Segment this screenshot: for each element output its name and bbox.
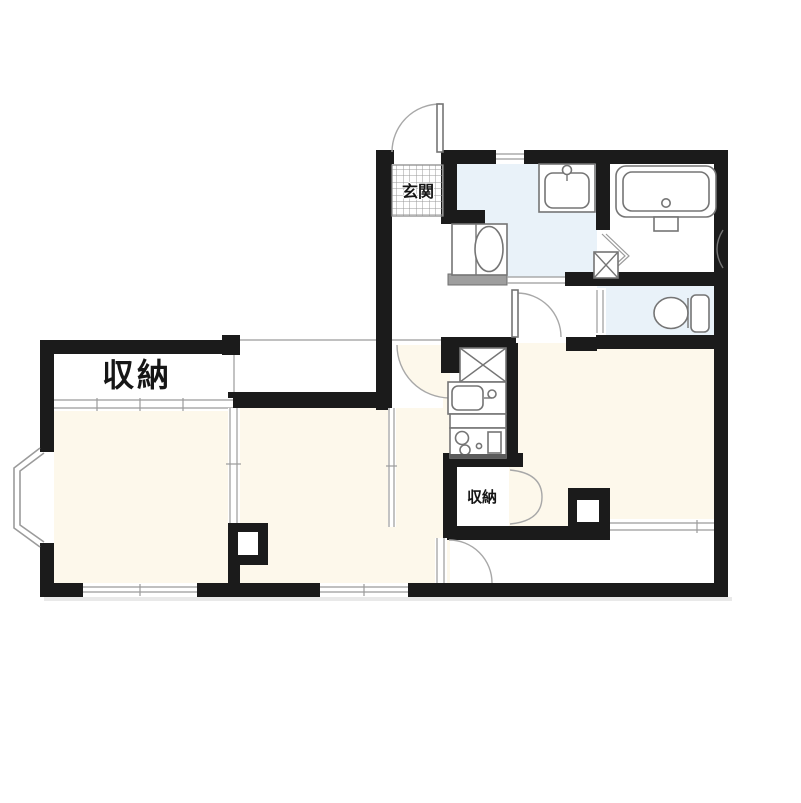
washing-machine bbox=[452, 224, 507, 275]
plan-shadow bbox=[44, 597, 732, 601]
wall-kitchen-stub bbox=[441, 337, 460, 373]
window-top-small bbox=[496, 150, 524, 164]
wall-left-upper bbox=[40, 340, 54, 452]
wall-hall-left bbox=[376, 150, 392, 410]
pillar-left-leg bbox=[228, 563, 240, 585]
living-hall-door bbox=[512, 290, 561, 337]
south-room-door bbox=[449, 540, 492, 583]
storage-small-label: 収納 bbox=[467, 488, 497, 506]
closet-sliding-doors bbox=[54, 398, 233, 411]
wall-bath-left bbox=[596, 150, 610, 230]
wall-bedroomcenter-top bbox=[228, 392, 392, 408]
wall-bottom-2 bbox=[197, 583, 320, 597]
window-bottom-left bbox=[83, 583, 197, 597]
window-living-south bbox=[610, 519, 714, 534]
wall-bath-bottom bbox=[565, 272, 728, 286]
wall-hall-bottom-right bbox=[566, 337, 597, 351]
bathtub bbox=[616, 166, 716, 231]
kitchen-counter bbox=[450, 414, 506, 428]
entrance-door bbox=[392, 104, 443, 152]
wall-bottom-3 bbox=[408, 583, 728, 597]
sliding-door-south-partition bbox=[435, 538, 447, 583]
wall-kitchen-right bbox=[506, 343, 518, 462]
sliding-door-left-center bbox=[226, 408, 241, 523]
wall-top-main bbox=[441, 150, 728, 164]
vanity-sink bbox=[539, 164, 595, 212]
wall-bottom-1 bbox=[40, 583, 83, 597]
refrigerator-space bbox=[460, 348, 506, 382]
kitchen-sink bbox=[448, 382, 506, 414]
toilet-door bbox=[594, 288, 606, 335]
wall-storage-top bbox=[40, 340, 236, 354]
wall-toilet-bottom bbox=[596, 335, 728, 349]
bay-window bbox=[14, 448, 44, 547]
window-bottom-center bbox=[320, 583, 408, 597]
gas-stove bbox=[450, 428, 506, 458]
bedroom-center-floor bbox=[240, 408, 450, 583]
pillar-left-notch bbox=[238, 532, 258, 555]
bedroom-left-floor bbox=[54, 398, 228, 583]
entrance-label: 玄関 bbox=[402, 182, 434, 201]
floorplan-canvas: 収納 玄関 収納 bbox=[0, 0, 801, 803]
wall-void-stub bbox=[222, 335, 240, 355]
wall-washer-alcove bbox=[441, 210, 485, 224]
storage-large-label: 収納 bbox=[102, 357, 172, 393]
floorplan-drawing: 収納 玄関 収納 bbox=[0, 0, 801, 803]
wall-right bbox=[714, 150, 728, 597]
pillar-right-notch bbox=[577, 500, 599, 522]
pipe-space bbox=[594, 252, 618, 278]
